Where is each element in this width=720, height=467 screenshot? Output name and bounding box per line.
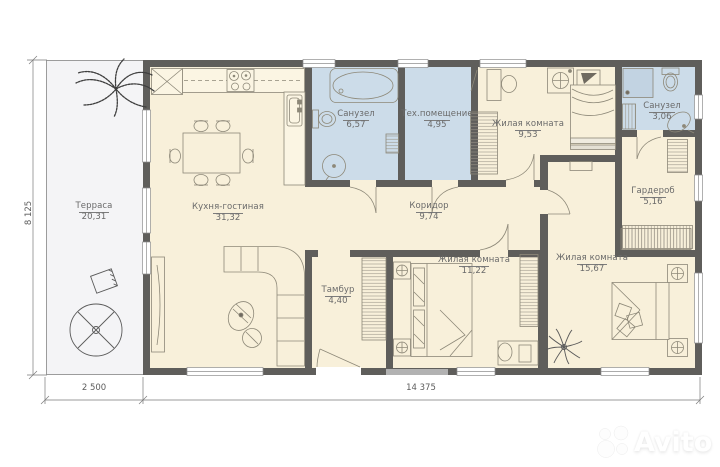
toilet-icon xyxy=(662,68,679,91)
room-label-corridor: Коридор9,74 xyxy=(384,202,474,223)
door-swing xyxy=(480,224,508,250)
tv-stand-icon xyxy=(152,257,165,352)
room-label-tech: Тех.помещение4,95 xyxy=(392,110,482,131)
room-label-bathroom-1: Санузел6,57 xyxy=(311,110,401,131)
washbasin-icon xyxy=(323,155,346,181)
dimension-house-width: 14 375 xyxy=(381,383,461,393)
dimension-height: 8 125 xyxy=(24,183,34,243)
cabinet-icon xyxy=(570,162,592,171)
window xyxy=(143,110,151,162)
room-label-bedroom-1567: Жилая комната15,67 xyxy=(547,254,637,275)
room-label-wardrobe: Гардероб5,16 xyxy=(608,187,698,208)
window xyxy=(143,242,151,274)
door-swing xyxy=(548,190,570,214)
room-label-bedroom-1122: Жилая комната11,22 xyxy=(429,256,519,277)
shower-icon xyxy=(623,69,653,98)
dining-table-icon xyxy=(183,133,240,173)
room-label-bathroom-2: Санузел3,06 xyxy=(617,102,707,123)
wardrobe-icon xyxy=(621,229,691,250)
floor-plan: Терраса20,31 Кухня-гостиная31,32 Санузел… xyxy=(0,0,720,467)
room-label-terrace: Терраса20,31 xyxy=(49,202,139,223)
window xyxy=(601,368,649,376)
tv-icon xyxy=(577,70,600,87)
window xyxy=(303,60,335,68)
plan-linework xyxy=(0,0,720,467)
desk-icon xyxy=(471,70,517,101)
window xyxy=(457,368,495,376)
door-swing xyxy=(350,187,376,213)
terrace-chair-icon xyxy=(91,269,118,293)
bed-icon xyxy=(571,85,616,150)
entrance-door-swing xyxy=(317,349,360,367)
double-bed-icon xyxy=(411,264,472,357)
bedroom1567-furniture xyxy=(546,229,691,365)
double-bed-icon xyxy=(612,283,669,340)
window xyxy=(187,368,263,376)
bathtub-icon xyxy=(330,69,398,103)
window xyxy=(480,60,526,68)
dimension-terrace-width: 2 500 xyxy=(64,383,124,393)
avito-logo-icon xyxy=(596,425,632,459)
door-swing xyxy=(506,154,534,180)
nightstand-icon xyxy=(394,339,411,356)
towel-radiator-icon xyxy=(386,134,399,153)
room-label-tambur: Тамбур4,40 xyxy=(293,286,383,307)
window xyxy=(398,60,428,68)
window xyxy=(695,273,703,343)
nightstand-icon xyxy=(668,265,688,283)
wardrobe-icon xyxy=(520,255,538,327)
desk-icon xyxy=(498,341,538,365)
door-swing xyxy=(637,137,661,159)
parasol-table-icon xyxy=(70,304,122,356)
nightstand-icon xyxy=(668,339,688,357)
avito-watermark-text: Avito xyxy=(634,427,712,458)
room-label-kitchen-living: Кухня-гостиная31,32 xyxy=(183,203,273,224)
shelving-icon xyxy=(668,140,688,173)
palm-plant-icon xyxy=(76,59,154,117)
window xyxy=(143,188,151,233)
fridge-icon xyxy=(152,69,183,95)
avito-watermark: Avito xyxy=(596,425,712,459)
armchair-icon xyxy=(223,297,261,347)
room-label-bedroom-953: Жилая комната9,53 xyxy=(483,120,573,141)
washing-machine-icon xyxy=(548,68,574,93)
plant-icon xyxy=(546,329,582,364)
nightstand-icon xyxy=(394,262,411,279)
